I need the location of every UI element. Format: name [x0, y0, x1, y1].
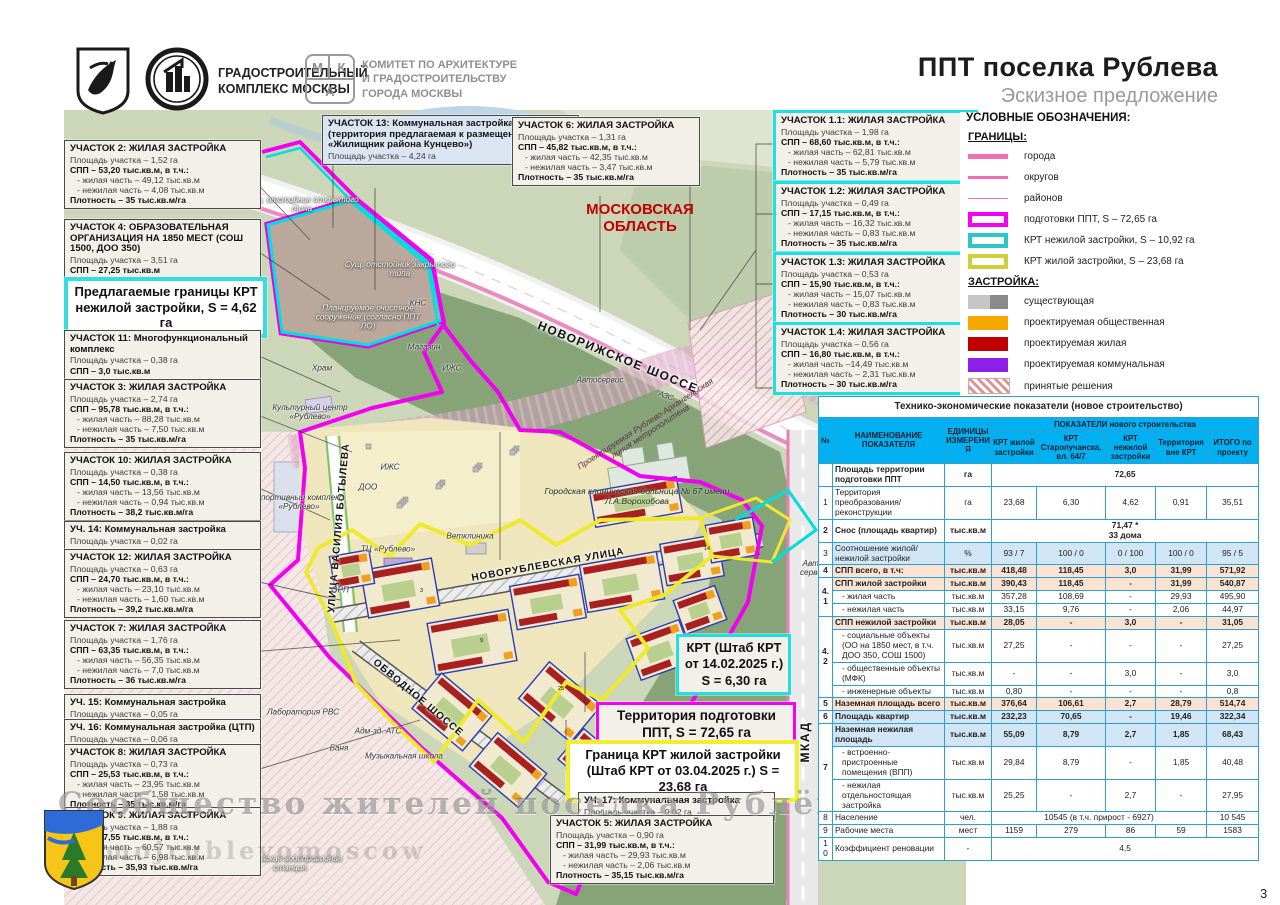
table-cell: 28,05 — [992, 617, 1037, 630]
table-cell: 95 / 5 — [1207, 542, 1259, 565]
table-cell: 9,76 — [1037, 604, 1106, 617]
annotation-box-uchastok-7: УЧАСТОК 7: ЖИЛАЯ ЗАСТРОЙКАПлощадь участк… — [64, 620, 261, 689]
table-row: - общественные объекты (МФК)тыс.кв.м--3,… — [819, 662, 1259, 685]
legend-swatch-fill-icon — [968, 337, 1010, 351]
legend-label: проектируемая коммунальная — [1024, 359, 1165, 370]
table-cell: 279 — [1037, 825, 1106, 838]
box-title: УЧ. 15: Коммунальная застройка — [70, 698, 256, 709]
table-cell: Рабочие места — [833, 825, 945, 838]
table-cell: Площадь квартир — [833, 711, 945, 724]
box-line: - нежилая часть – 0,94 тыс.кв.м — [70, 497, 256, 507]
table-row: 8Населениечел.10545 (в т.ч. прирост - 69… — [819, 812, 1259, 825]
box-line: - жилая часть – 29,93 тыс.кв.м — [556, 850, 769, 860]
legend-swatch-line-icon — [968, 198, 1010, 200]
table-row: - нежилая частьтыс.кв.м33,159,76-2,0644,… — [819, 604, 1259, 617]
annotation-box-uchastok-8: УЧАСТОК 8: ЖИЛАЯ ЗАСТРОЙКАПлощадь участк… — [64, 744, 261, 813]
table-cell: тыс.кв.м — [945, 565, 992, 578]
stroycomplex-logo — [144, 46, 210, 112]
table-cell: Соотношение жилой/нежилой застройки — [833, 542, 945, 565]
table-cell: - — [1106, 747, 1156, 780]
box-line: Плотность – 36 тыс.кв.м/га — [70, 675, 256, 685]
table-cell: - общественные объекты (МФК) — [833, 662, 945, 685]
table-cell: - — [1037, 662, 1106, 685]
table-cell: 2,7 — [1106, 724, 1156, 747]
legend-swatch-rect-icon — [968, 212, 1010, 227]
legend-swatch-fill-icon — [968, 316, 1010, 330]
table-cell: 9 — [819, 825, 833, 838]
table-row: 7Наземная нежилая площадьтыс.кв.м55,098,… — [819, 724, 1259, 747]
legend-label: округов — [1024, 172, 1059, 183]
table-header-cell: ПОКАЗАТЕЛИ нового строительства — [992, 417, 1259, 431]
legend-label: существующая — [1024, 296, 1094, 307]
table-cell: тыс.кв.м — [945, 591, 992, 604]
table-row: - инженерные объектытыс.кв.м0,80---0,8 — [819, 685, 1259, 698]
table-title: Технико-экономические показатели (новое … — [819, 397, 1259, 418]
table-cell: 100 / 0 — [1156, 542, 1207, 565]
table-cell: - встроенно-пристроенные помещения (ВПП) — [833, 747, 945, 780]
table-header-cell: КРТ жилой застройки — [992, 431, 1037, 464]
table-cell: - — [945, 838, 992, 861]
page-number: 3 — [1260, 886, 1267, 901]
legend-item: принятые решения — [968, 378, 1280, 394]
table-cell: 93 / 7 — [992, 542, 1037, 565]
box-line: СПП – 63,35 тыс.кв.м, в т.ч.: — [70, 645, 256, 655]
box-title: УЧАСТОК 1.1: ЖИЛАЯ ЗАСТРОЙКА — [781, 116, 971, 127]
table-cell: 44,97 — [1207, 604, 1259, 617]
table-cell: - нежилая отдельностоящая застройка — [833, 779, 945, 812]
box-title: УЧАСТОК 1.2: ЖИЛАЯ ЗАСТРОЙКА — [781, 187, 971, 198]
legend-item: города — [968, 149, 1280, 164]
svg-text:9: 9 — [480, 638, 483, 644]
box-line: Плотность – 35 тыс.кв.м/га — [70, 195, 256, 205]
table-cell: 1,85 — [1156, 724, 1207, 747]
box-line: - нежилая часть – 0,83 тыс.кв.м — [781, 228, 971, 238]
box-line: Плотность – 35 тыс.кв.м/га — [781, 238, 971, 248]
box-line: Плотность – 35 тыс.кв.м/га — [70, 434, 256, 444]
annotation-box-uchastok-1-3: УЧАСТОК 1.3: ЖИЛАЯ ЗАСТРОЙКАПлощадь учас… — [773, 252, 978, 325]
legend-swatch-dualgray-icon — [968, 295, 1010, 309]
table-cell: Коэффициент реновации — [833, 838, 945, 861]
box-line: - жилая часть – 16,32 тыс.кв.м — [781, 218, 971, 228]
box-line: Плотность – 39,2 тыс.кв.м/га — [70, 604, 256, 614]
annotation-box-uchastok-1-4: УЧАСТОК 1.4: ЖИЛАЯ ЗАСТРОЙКАПлощадь учас… — [773, 322, 978, 395]
table-cell: 495,90 — [1207, 591, 1259, 604]
annotation-box-uchastok-14: УЧ. 14: Коммунальная застройкаПлощадь уч… — [64, 521, 261, 550]
box-title: УЧАСТОК 6: ЖИЛАЯ ЗАСТРОЙКА — [518, 121, 695, 132]
table-row: 9Рабочие местамест115927986591583 — [819, 825, 1259, 838]
legend-item: районов — [968, 191, 1280, 206]
table-cell: - — [1037, 629, 1106, 662]
box-title: УЧ. 16: Коммунальная застройка (ЦТП) — [70, 723, 256, 734]
annotation-box-uchastok-11: УЧАСТОК 11: Многофункциональный комплекс… — [64, 330, 261, 380]
legend-label: проектируемая жилая — [1024, 338, 1126, 349]
box-title: КРТ (Штаб КРТ от 14.02.2025 г.) S = 6,30… — [684, 640, 784, 689]
box-title: УЧАСТОК 4: ОБРАЗОВАТЕЛЬНАЯ ОРГАНИЗАЦИЯ Н… — [70, 223, 256, 255]
org2-label: КОМИТЕТ ПО АРХИТЕКТУРЕИ ГРАДОСТРОИТЕЛЬСТ… — [362, 58, 517, 101]
table-cell: 514,74 — [1207, 698, 1259, 711]
table-cell: 2 — [819, 519, 833, 542]
box-line: Площадь участка – 0,38 га — [70, 467, 256, 477]
table-cell: 4 — [819, 565, 833, 578]
box-line: Площадь участка – 0,38 га — [70, 355, 256, 365]
table-cell: - — [1156, 662, 1207, 685]
box-line: Площадь участка – 0,02 га — [70, 536, 256, 546]
table-cell: 10545 (в т.ч. прирост - 6927) — [992, 812, 1207, 825]
table-cell: - — [1156, 779, 1207, 812]
table-cell: 55,09 — [992, 724, 1037, 747]
box-line: СПП – 17,15 тыс.кв.м, в т.ч.: — [781, 208, 971, 218]
legend-group-heading: ГРАНИЦЫ: — [968, 131, 1280, 143]
table-cell: 1 — [819, 487, 833, 520]
table-cell: тыс.кв.м — [945, 519, 992, 542]
box-line: Плотность – 38,2 тыс.кв.м/га — [70, 507, 256, 517]
table-cell: 27,25 — [1207, 629, 1259, 662]
table-cell: 418,48 — [992, 565, 1037, 578]
box-line: - жилая часть – 56,35 тыс.кв.м — [70, 655, 256, 665]
box-line: СПП – 15,90 тыс.кв.м, в т.ч.: — [781, 279, 971, 289]
table-cell: 108,69 — [1037, 591, 1106, 604]
table-row: - жилая частьтыс.кв.м357,28108,69-29,934… — [819, 591, 1259, 604]
legend-label: подготовки ППТ, S – 72,65 га — [1024, 214, 1157, 225]
box-line: Площадь участка – 1,52 га — [70, 155, 256, 165]
table-cell: СПП нежилой застройки — [833, 617, 945, 630]
box-line: Плотность – 30 тыс.кв.м/га — [781, 309, 971, 319]
legend-item: проектируемая общественная — [968, 315, 1280, 330]
table-cell: Наземная площадь всего — [833, 698, 945, 711]
table-cell: 4.2 — [819, 617, 833, 698]
legend-swatch-hatch-icon — [968, 378, 1010, 394]
plan-sheet: 149 253 ГРАДОСТРОИТЕЛЬНЫЙКОМПЛЕКС МОСКВЫ… — [0, 0, 1280, 905]
table-cell: 1159 — [992, 825, 1037, 838]
box-line: Площадь участка – 0,90 га — [556, 830, 769, 840]
box-line: СПП – 24,70 тыс.кв.м, в т.ч.: — [70, 574, 256, 584]
box-line: Площадь участка – 2,74 га — [70, 394, 256, 404]
box-line: Площадь участка – 1,31 га — [518, 132, 695, 142]
svg-text:3: 3 — [420, 588, 423, 594]
table-cell: 106,61 — [1037, 698, 1106, 711]
box-line: СПП – 3,0 тыс.кв.м — [70, 366, 256, 376]
table-cell: 322,34 — [1207, 711, 1259, 724]
table-cell: тыс.кв.м — [945, 685, 992, 698]
box-line: - нежилая часть – 7,0 тыс.кв.м — [70, 665, 256, 675]
table-header-cell: НАИМЕНОВАНИЕ ПОКАЗАТЕЛЯ — [833, 417, 945, 464]
annotation-box-uchastok-3: УЧАСТОК 3: ЖИЛАЯ ЗАСТРОЙКАПлощадь участк… — [64, 379, 261, 448]
box-line: - нежилая часть – 7,50 тыс.кв.м — [70, 424, 256, 434]
table-cell: 8 — [819, 812, 833, 825]
table-cell: 28,79 — [1156, 698, 1207, 711]
table-cell: 2,06 — [1156, 604, 1207, 617]
legend-item: КРТ нежилой застройки, S – 10,92 га — [968, 233, 1280, 248]
box-title: Предлагаемые границы КРТ нежилой застрой… — [73, 284, 259, 331]
table-cell: - — [1156, 685, 1207, 698]
box-line: СПП – 31,99 тыс.кв.м, в т.ч.: — [556, 840, 769, 850]
annotation-box-uchastok-4: УЧАСТОК 4: ОБРАЗОВАТЕЛЬНАЯ ОРГАНИЗАЦИЯ Н… — [64, 219, 261, 279]
box-line: - нежилая часть – 0,83 тыс.кв.м — [781, 299, 971, 309]
table-cell: тыс.кв.м — [945, 662, 992, 685]
box-line: - нежилая часть – 2,31 тыс.кв.м — [781, 369, 971, 379]
table-cell — [819, 464, 833, 487]
legend-swatch-line-icon — [968, 154, 1010, 159]
annotation-box-krt-shtab: КРТ (Штаб КРТ от 14.02.2025 г.) S = 6,30… — [676, 634, 791, 695]
box-title: УЧ. 14: Коммунальная застройка — [70, 525, 256, 536]
table-cell: 2,7 — [1106, 698, 1156, 711]
legend-label: принятые решения — [1024, 381, 1113, 392]
table-cell: 68,43 — [1207, 724, 1259, 747]
table-row: 6Площадь квартиртыс.кв.м232,2370,65-19,4… — [819, 711, 1259, 724]
table-cell: СПП жилой застройки — [833, 578, 945, 591]
box-title: УЧАСТОК 2: ЖИЛАЯ ЗАСТРОЙКА — [70, 144, 256, 155]
box-line: СПП – 27,25 тыс.кв.м — [70, 265, 256, 275]
table-row: 3Соотношение жилой/нежилой застройки%93 … — [819, 542, 1259, 565]
table-cell: - — [1156, 629, 1207, 662]
table-cell: 6 — [819, 711, 833, 724]
box-line: СПП – 25,53 тыс.кв.м, в т.ч.: — [70, 769, 256, 779]
legend-label: города — [1024, 151, 1055, 162]
table-cell: мест — [945, 825, 992, 838]
table-row: 4СПП всего, в т.ч:тыс.кв.м418,48118,453,… — [819, 565, 1259, 578]
settlement-emblem — [42, 808, 106, 892]
legend-group-heading: ЗАСТРОЙКА: — [968, 276, 1280, 288]
legend-label: КРТ нежилой застройки, S – 10,92 га — [1024, 235, 1195, 246]
table-cell: тыс.кв.м — [945, 711, 992, 724]
box-title: УЧАСТОК 8: ЖИЛАЯ ЗАСТРОЙКА — [70, 748, 256, 759]
box-line: Площадь участка – 1,76 га — [70, 635, 256, 645]
table-cell: 29,84 — [992, 747, 1037, 780]
legend-item: проектируемая жилая — [968, 336, 1280, 351]
tep-table: Технико-экономические показатели (новое … — [818, 396, 1258, 861]
table-row: 4.1СПП жилой застройкитыс.кв.м390,43118,… — [819, 578, 1259, 591]
box-line: Площадь участка – 0,73 га — [70, 759, 256, 769]
legend-item: проектируемая коммунальная — [968, 357, 1280, 372]
box-line: - нежилая часть – 2,06 тыс.кв.м — [556, 860, 769, 870]
table-cell: 10 — [819, 838, 833, 861]
table-cell: 71,47 * 33 дома — [992, 519, 1259, 542]
legend-item: существующая — [968, 294, 1280, 309]
legend-item: КРТ жилой застройки, S – 23,68 га — [968, 254, 1280, 269]
table-cell: - — [992, 662, 1037, 685]
table-cell: 390,43 — [992, 578, 1037, 591]
box-line: Площадь участка – 1,98 га — [781, 127, 971, 137]
table-cell: 59 — [1156, 825, 1207, 838]
table-head-row: №НАИМЕНОВАНИЕ ПОКАЗАТЕЛЯЕДИНИЦЫ ИЗМЕРЕНИ… — [819, 417, 1259, 431]
table-cell: 5 — [819, 698, 833, 711]
box-title: Граница КРТ жилой застройки (Штаб КРТ от… — [575, 747, 791, 795]
table-cell: - — [1037, 685, 1106, 698]
table-cell: 3,0 — [1207, 662, 1259, 685]
table-cell: 70,65 — [1037, 711, 1106, 724]
table-cell: 232,23 — [992, 711, 1037, 724]
table-cell: Снос (площадь квартир) — [833, 519, 945, 542]
table-cell: 19,46 — [1156, 711, 1207, 724]
table-cell: 31,99 — [1156, 578, 1207, 591]
table-cell: 571,92 — [1207, 565, 1259, 578]
table-cell: тыс.кв.м — [945, 724, 992, 747]
table-cell: 31,05 — [1207, 617, 1259, 630]
annotation-box-uchastok-5: УЧАСТОК 5: ЖИЛАЯ ЗАСТРОЙКАПлощадь участк… — [550, 815, 774, 884]
table-row: 5Наземная площадь всеготыс.кв.м376,64106… — [819, 698, 1259, 711]
table-cell: 4.1 — [819, 578, 833, 617]
legend-label: проектируемая общественная — [1024, 317, 1165, 328]
table-cell: 29,93 — [1156, 591, 1207, 604]
table-cell: - — [1037, 779, 1106, 812]
svg-text:14: 14 — [704, 546, 710, 552]
table-header-cell: ЕДИНИЦЫ ИЗМЕРЕНИЯ — [945, 417, 992, 464]
table-cell: 3,0 — [1106, 617, 1156, 630]
mka-logo: МК А — [305, 54, 355, 104]
table-cell: - — [1106, 578, 1156, 591]
box-line: Площадь участка – 0,05 га — [70, 709, 256, 719]
table-row: 4.2СПП нежилой застройкитыс.кв.м28,05-3,… — [819, 617, 1259, 630]
box-line: Плотность – 35 тыс.кв.м/га — [781, 167, 971, 177]
moscow-coat-of-arms-logo — [74, 46, 132, 116]
table-cell: - — [1106, 685, 1156, 698]
box-line: СПП – 68,60 тыс.кв.м, в т.ч.: — [781, 137, 971, 147]
box-line: - жилая часть – 23,10 тыс.кв.м — [70, 584, 256, 594]
table-cell: - — [1106, 711, 1156, 724]
box-line: - жилая часть – 23,95 тыс.кв.м — [70, 779, 256, 789]
box-line: СПП – 53,20 тыс.кв.м, в т.ч.: — [70, 165, 256, 175]
table-cell: 27,95 — [1207, 779, 1259, 812]
box-title: УЧАСТОК 11: Многофункциональный комплекс — [70, 334, 256, 355]
box-line: Площадь участка – 0,53 га — [781, 269, 971, 279]
table-cell: - — [1106, 629, 1156, 662]
table-cell: 0 / 100 — [1106, 542, 1156, 565]
box-line: - жилая часть –14,49 тыс.кв.м — [781, 359, 971, 369]
annotation-box-uchastok-2: УЧАСТОК 2: ЖИЛАЯ ЗАСТРОЙКАПлощадь участк… — [64, 140, 261, 209]
box-title: УЧАСТОК 1.4: ЖИЛАЯ ЗАСТРОЙКА — [781, 328, 971, 339]
legend-item: округов — [968, 170, 1280, 185]
table-cell: 3,0 — [1106, 565, 1156, 578]
box-line: Площадь участка – 0,63 га — [70, 564, 256, 574]
table-cell: 31,99 — [1156, 565, 1207, 578]
table-cell: 0,80 — [992, 685, 1037, 698]
table-cell: 86 — [1106, 825, 1156, 838]
box-line: - жилая часть – 49,12 тыс.кв.м — [70, 175, 256, 185]
table-header-cell: № — [819, 417, 833, 464]
table-cell: - инженерные объекты — [833, 685, 945, 698]
table-cell: тыс.кв.м — [945, 779, 992, 812]
table-cell: 10 545 — [1207, 812, 1259, 825]
table-cell: 3 — [819, 542, 833, 565]
table-cell: Население — [833, 812, 945, 825]
annotation-box-uchastok-1-1: УЧАСТОК 1.1: ЖИЛАЯ ЗАСТРОЙКАПлощадь учас… — [773, 110, 978, 183]
box-line: Плотность – 35 тыс.кв.м/га — [518, 172, 695, 182]
box-line: - нежилая часть – 1,60 тыс.кв.м — [70, 594, 256, 604]
box-line: Площадь участка – 0,56 га — [781, 339, 971, 349]
box-line: Площадь участка – 0,49 га — [781, 198, 971, 208]
box-line: - жилая часть – 62,81 тыс.кв.м — [781, 147, 971, 157]
table-cell: 357,28 — [992, 591, 1037, 604]
legend-swatch-fill-icon — [968, 358, 1010, 372]
legend-title: УСЛОВНЫЕ ОБОЗНАЧЕНИЯ: — [966, 112, 1280, 124]
table-cell: - нежилая часть — [833, 604, 945, 617]
box-title: УЧАСТОК 1.3: ЖИЛАЯ ЗАСТРОЙКА — [781, 258, 971, 269]
table-cell: 3,0 — [1106, 662, 1156, 685]
table-cell: 40,48 — [1207, 747, 1259, 780]
table-cell: 1,85 — [1156, 747, 1207, 780]
box-line: - нежилая часть – 5,79 тыс.кв.м — [781, 157, 971, 167]
legend-item: подготовки ППТ, S – 72,65 га — [968, 212, 1280, 227]
table-cell: га — [945, 487, 992, 520]
table-row: Площадь территории подготовки ППТга72,65 — [819, 464, 1259, 487]
box-title: УЧАСТОК 3: ЖИЛАЯ ЗАСТРОЙКА — [70, 383, 256, 394]
box-line: - нежилая часть – 3,47 тыс.кв.м — [518, 162, 695, 172]
box-line: - жилая часть – 42,35 тыс.кв.м — [518, 152, 695, 162]
table-row: - социальные объекты (ОО на 1850 мест, в… — [819, 629, 1259, 662]
table-cell: 1583 — [1207, 825, 1259, 838]
box-line: СПП – 16,80 тыс.кв.м, в т.ч.: — [781, 349, 971, 359]
table-cell: тыс.кв.м — [945, 617, 992, 630]
legend-label: КРТ жилой застройки, S – 23,68 га — [1024, 256, 1184, 267]
table-cell: Территория преобразования/ реконструкции — [833, 487, 945, 520]
box-title: УЧАСТОК 10: ЖИЛАЯ ЗАСТРОЙКА — [70, 456, 256, 467]
legend-swatch-rect-icon — [968, 254, 1010, 269]
table-cell: - социальные объекты (ОО на 1850 мест, в… — [833, 629, 945, 662]
table-header-cell: Территория вне КРТ — [1156, 431, 1207, 464]
table-header-cell: КРТ Старолучанска, вл. 64/7 — [1037, 431, 1106, 464]
table-header-cell: КРТ нежилой застройки — [1106, 431, 1156, 464]
table-cell: 8,79 — [1037, 747, 1106, 780]
map-legend: УСЛОВНЫЕ ОБОЗНАЧЕНИЯ: ГРАНИЦЫ:городаокру… — [960, 112, 1280, 415]
table-cell: Площадь территории подготовки ППТ — [833, 464, 945, 487]
box-title: УЧ. 17: Коммунальная застройка — [584, 796, 770, 807]
annotation-box-uchastok-1-2: УЧАСТОК 1.2: ЖИЛАЯ ЗАСТРОЙКАПлощадь учас… — [773, 181, 978, 254]
table-cell: тыс.кв.м — [945, 578, 992, 591]
box-line: - жилая часть – 15,07 тыс.кв.м — [781, 289, 971, 299]
table-cell: 100 / 0 — [1037, 542, 1106, 565]
table-cell: тыс.кв.м — [945, 629, 992, 662]
box-line: СПП – 45,82 тыс.кв.м, в т.ч.: — [518, 142, 695, 152]
table-header-cell: ИТОГО по проекту — [1207, 431, 1259, 464]
table-row: 2Снос (площадь квартир)тыс.кв.м71,47 * 3… — [819, 519, 1259, 542]
table-cell: - — [1037, 617, 1106, 630]
table-cell: 2,7 — [1106, 779, 1156, 812]
table-cell: 23,68 — [992, 487, 1037, 520]
annotation-box-uchastok-6: УЧАСТОК 6: ЖИЛАЯ ЗАСТРОЙКАПлощадь участк… — [512, 117, 700, 186]
table-cell: 0,8 — [1207, 685, 1259, 698]
table-row: - встроенно-пристроенные помещения (ВПП)… — [819, 747, 1259, 780]
table-cell: - — [1156, 617, 1207, 630]
table-cell: тыс.кв.м — [945, 604, 992, 617]
table-cell: 0,91 — [1156, 487, 1207, 520]
table-cell: 6,30 — [1037, 487, 1106, 520]
annotation-box-uchastok-10: УЧАСТОК 10: ЖИЛАЯ ЗАСТРОЙКАПлощадь участ… — [64, 452, 261, 521]
table-cell: 8,79 — [1037, 724, 1106, 747]
box-line: Плотность – 30 тыс.кв.м/га — [781, 379, 971, 389]
table-cell: 25,25 — [992, 779, 1037, 812]
table-cell: 118,45 — [1037, 565, 1106, 578]
box-line: Площадь участка – 0,06 га — [70, 734, 256, 744]
table-row: - нежилая отдельностоящая застройкатыс.к… — [819, 779, 1259, 812]
table-cell: 376,64 — [992, 698, 1037, 711]
page-subtitle: Эскизное предложение — [918, 85, 1218, 108]
table-cell: 35,51 — [1207, 487, 1259, 520]
table-cell: 118,45 — [1037, 578, 1106, 591]
table-cell: чел. — [945, 812, 992, 825]
table-cell: Наземная нежилая площадь — [833, 724, 945, 747]
box-title: УЧАСТОК 12: ЖИЛАЯ ЗАСТРОЙКА — [70, 553, 256, 564]
table-cell: 7 — [819, 724, 833, 812]
table-cell: тыс.кв.м — [945, 747, 992, 780]
box-title: Территория подготовки ППТ, S = 72,65 га — [604, 708, 789, 742]
table-cell: 72,65 — [992, 464, 1259, 487]
annotation-box-granitsy-krt-nezhiloy: Предлагаемые границы КРТ нежилой застрой… — [64, 277, 267, 338]
table-row: 1Территория преобразования/ реконструкци… — [819, 487, 1259, 520]
box-line: СПП – 95,78 тыс.кв.м, в т.ч.: — [70, 404, 256, 414]
box-line: - нежилая часть – 1,58 тыс.кв.м — [70, 789, 256, 799]
table-cell: СПП всего, в т.ч: — [833, 565, 945, 578]
annotation-box-uchastok-12: УЧАСТОК 12: ЖИЛАЯ ЗАСТРОЙКАПлощадь участ… — [64, 549, 261, 618]
